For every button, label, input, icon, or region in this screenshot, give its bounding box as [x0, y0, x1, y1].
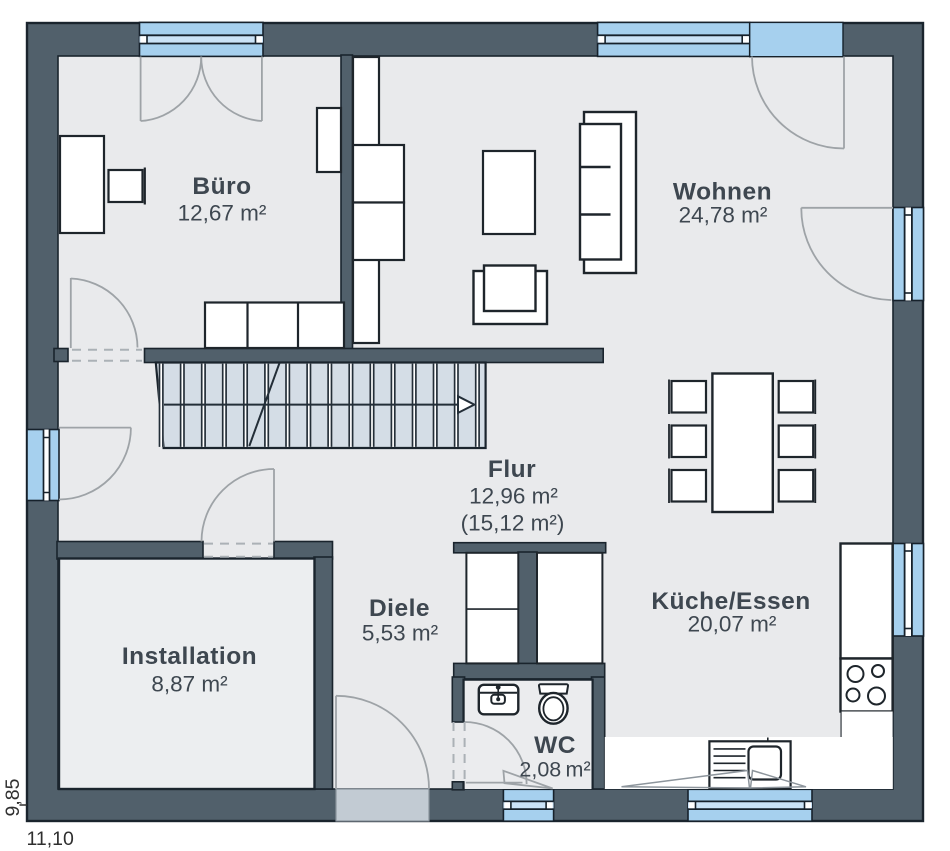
svg-text:Büro: Büro [192, 173, 251, 200]
svg-text:Installation: Installation [122, 643, 257, 670]
svg-text:12,96 m²: 12,96 m² [469, 484, 558, 509]
svg-text:9,85: 9,85 [2, 778, 24, 816]
svg-text:Diele: Diele [369, 595, 430, 622]
svg-text:20,07 m²: 20,07 m² [688, 612, 777, 637]
svg-text:11,10: 11,10 [27, 828, 75, 850]
svg-text:24,78 m²: 24,78 m² [679, 203, 768, 228]
svg-text:2,08 m²: 2,08 m² [519, 758, 590, 782]
svg-text:5,53 m²: 5,53 m² [362, 621, 439, 646]
svg-text:WC: WC [534, 732, 576, 759]
svg-text:8,87 m²: 8,87 m² [151, 672, 228, 697]
svg-text:(15,12 m²): (15,12 m²) [461, 511, 565, 536]
svg-text:12,67 m²: 12,67 m² [178, 201, 267, 226]
svg-text:Flur: Flur [488, 456, 536, 483]
svg-text:Wohnen: Wohnen [673, 179, 772, 206]
